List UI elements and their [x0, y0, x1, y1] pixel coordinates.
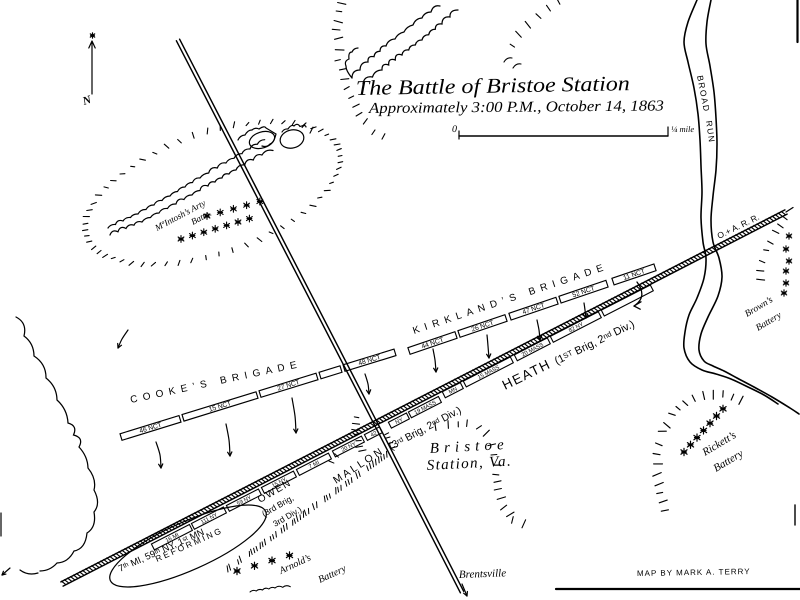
- svg-text:The Battle of Bristoe Station: The Battle of Bristoe Station: [356, 71, 630, 100]
- svg-text:¼ mile: ¼ mile: [671, 124, 694, 134]
- svg-text:Approximately 3:00 P.M., Oct: Approximately 3:00 P.M., October 14, 186…: [368, 97, 665, 117]
- svg-text:0: 0: [452, 124, 457, 135]
- svg-text:Brentsville: Brentsville: [459, 567, 507, 581]
